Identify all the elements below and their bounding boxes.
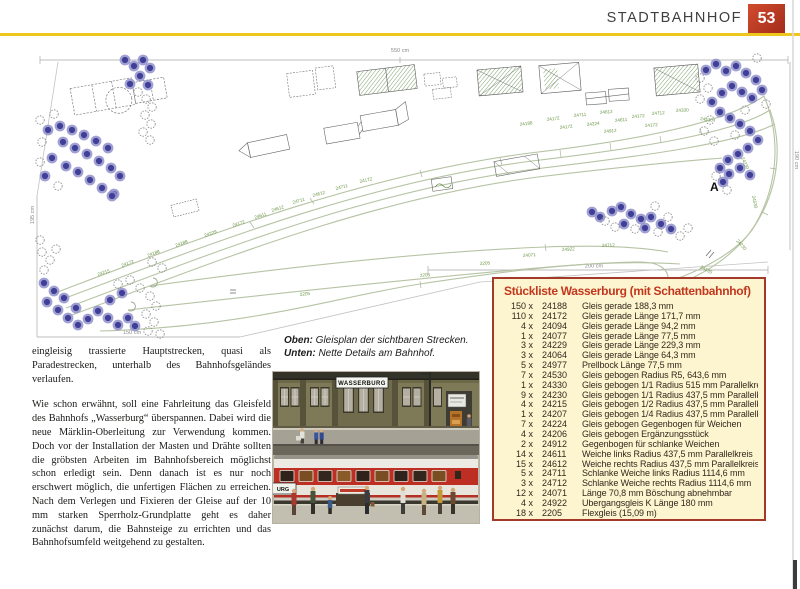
tree-icon bbox=[60, 139, 66, 145]
track-part-label: 24172 bbox=[359, 176, 373, 184]
tree-icon bbox=[621, 221, 627, 227]
tree-icon bbox=[115, 322, 121, 328]
tree-outline-icon bbox=[54, 182, 62, 190]
tree-icon bbox=[93, 138, 99, 144]
parts-list: Stückliste Wasserburg (mit Schattenbahnh… bbox=[492, 277, 766, 521]
track-part-label: 24071 bbox=[523, 252, 537, 258]
tree-icon bbox=[747, 128, 753, 134]
tree-icon bbox=[57, 123, 63, 129]
tree-outline-icon bbox=[664, 213, 672, 221]
parts-code: 2205 bbox=[542, 509, 576, 519]
parts-desc: Gleis gebogen 1/4 Radius 437,5 mm Parall… bbox=[582, 410, 758, 420]
tree-icon bbox=[96, 158, 102, 164]
tree-icon bbox=[107, 297, 113, 303]
track-part-label: 24188 bbox=[519, 120, 533, 127]
passenger-coach bbox=[274, 455, 478, 505]
parts-desc: Schlanke Weiche rechts Radius 1114,6 mm bbox=[582, 479, 758, 489]
tree-icon bbox=[117, 173, 123, 179]
tree-icon bbox=[87, 177, 93, 183]
track-part-label: 24224 bbox=[587, 121, 601, 127]
track-part-label: 24188 bbox=[147, 249, 161, 258]
tree-outline-icon bbox=[52, 245, 60, 253]
tree-icon bbox=[145, 82, 151, 88]
tree-icon bbox=[41, 280, 47, 286]
tree-outline-icon bbox=[38, 248, 46, 256]
caption-lead-oben: Oben: bbox=[284, 335, 313, 346]
tree-outline-icon bbox=[142, 95, 150, 103]
tree-outline-icon bbox=[753, 54, 761, 62]
tree-icon bbox=[658, 221, 664, 227]
tree-icon bbox=[743, 70, 749, 76]
track-part-label: 24172 bbox=[560, 124, 574, 130]
parts-desc: Prellbock Länge 77,5 mm bbox=[582, 361, 758, 371]
parts-desc: Gleis gebogen 1/1 Radius 437,5 mm Parall… bbox=[582, 391, 758, 401]
partial-sign-text: URG bbox=[277, 487, 289, 493]
track-part-label: 24612 bbox=[271, 204, 285, 213]
tree-icon bbox=[55, 307, 61, 313]
tree-icon bbox=[119, 290, 125, 296]
parts-desc: Gleis gerade Länge 64,3 mm bbox=[582, 351, 758, 361]
parts-qty: 18 x bbox=[504, 509, 533, 519]
tree-icon bbox=[61, 295, 67, 301]
tree-outline-icon bbox=[654, 228, 662, 236]
track-part-label: 2205 bbox=[300, 291, 311, 297]
track-part-label: 2205 bbox=[480, 260, 491, 266]
tree-icon bbox=[75, 169, 81, 175]
tree-icon bbox=[749, 95, 755, 101]
tree-icon bbox=[726, 171, 732, 177]
tree-icon bbox=[95, 308, 101, 314]
tree-outline-icon bbox=[631, 225, 639, 233]
track-part-label: 24172 bbox=[547, 115, 561, 122]
track-part-label: 24215 bbox=[97, 268, 111, 277]
tree-icon bbox=[51, 288, 57, 294]
tree-icon bbox=[49, 155, 55, 161]
tree-icon bbox=[109, 193, 115, 199]
tree-icon bbox=[132, 323, 138, 329]
parts-desc: Gleis gebogen Gegenbogen für Weichen bbox=[582, 420, 758, 430]
tree-icon bbox=[45, 127, 51, 133]
tree-outline-icon bbox=[146, 136, 154, 144]
tree-outline-icon bbox=[148, 103, 156, 111]
station-sign-text: WASSERBURG bbox=[338, 381, 386, 387]
track-part-label: 24188 bbox=[175, 239, 189, 248]
tree-icon bbox=[642, 225, 648, 231]
tree-outline-icon bbox=[144, 327, 152, 335]
tree-icon bbox=[717, 109, 723, 115]
parts-desc: Gleis gerade Länge 77,5 mm bbox=[582, 332, 758, 342]
tree-outline-icon bbox=[40, 266, 48, 274]
tree-icon bbox=[147, 65, 153, 71]
tree-icon bbox=[63, 163, 69, 169]
tree-icon bbox=[99, 185, 105, 191]
tree-icon bbox=[85, 316, 91, 322]
tree-icon bbox=[131, 63, 137, 69]
tree-outline-icon bbox=[126, 276, 134, 284]
caption-text-unten: Nette Details am Bahnhof. bbox=[316, 348, 436, 359]
tree-icon bbox=[739, 89, 745, 95]
tree-outline-icon bbox=[704, 84, 712, 92]
parts-desc: Gleis gebogen 1/2 Radius 437,5 mm Parall… bbox=[582, 400, 758, 410]
tree-outline-icon bbox=[712, 172, 720, 180]
scan-edge-light bbox=[792, 0, 794, 589]
track-part-label: 24711 bbox=[574, 112, 587, 118]
tree-icon bbox=[137, 73, 143, 79]
parts-desc: Übergangsgleis K Länge 180 mm bbox=[582, 499, 758, 509]
tree-icon bbox=[105, 145, 111, 151]
tree-icon bbox=[709, 99, 715, 105]
tree-icon bbox=[648, 214, 654, 220]
tree-outline-icon bbox=[710, 137, 718, 145]
tree-icon bbox=[75, 322, 81, 328]
track-part-label: 24172 bbox=[232, 219, 246, 228]
tree-icon bbox=[84, 151, 90, 157]
track-part-label: 2205 bbox=[420, 272, 431, 278]
scan-edge-dark bbox=[793, 560, 797, 589]
track-part-label: 24612 bbox=[312, 190, 326, 198]
track-part-label: 24172 bbox=[632, 113, 646, 119]
parts-desc: Weiche links Radius 437,5 mm Parallelkre… bbox=[582, 450, 758, 460]
tree-icon bbox=[725, 157, 731, 163]
caption-lead-unten: Unten: bbox=[284, 348, 316, 359]
article-paragraph-2: Wie schon erwähnt, soll eine Fahrleitung… bbox=[32, 398, 271, 550]
tree-icon bbox=[69, 127, 75, 133]
parts-list-row: 18 x2205Flexgleis (15,09 m) bbox=[504, 509, 758, 519]
tree-outline-icon bbox=[146, 292, 154, 300]
tree-outline-icon bbox=[36, 158, 44, 166]
tree-outline-icon bbox=[158, 264, 166, 272]
caption-text-oben: Gleisplan der sichtbaren Strecken. bbox=[313, 335, 469, 346]
tree-icon bbox=[753, 77, 759, 83]
track-part-label: 24230 bbox=[735, 238, 748, 251]
tree-icon bbox=[125, 315, 131, 321]
track-part-label: 24172 bbox=[121, 259, 135, 268]
tree-icon bbox=[668, 226, 674, 232]
parts-desc: Gegenbogen für schlanke Weichen bbox=[582, 440, 758, 450]
tree-icon bbox=[122, 57, 128, 63]
tree-icon bbox=[140, 57, 146, 63]
parts-list-title: Stückliste Wasserburg (mit Schattenbahnh… bbox=[504, 284, 758, 298]
tree-icon bbox=[628, 211, 634, 217]
tree-outline-icon bbox=[147, 120, 155, 128]
tree-icon bbox=[618, 204, 624, 210]
tree-icon bbox=[81, 132, 87, 138]
tree-icon bbox=[65, 315, 71, 321]
tree-icon bbox=[735, 151, 741, 157]
tree-outline-icon bbox=[611, 223, 619, 231]
tree-icon bbox=[745, 145, 751, 151]
tree-outline-icon bbox=[139, 128, 147, 136]
tree-icon bbox=[638, 216, 644, 222]
tree-icon bbox=[609, 208, 615, 214]
tree-icon bbox=[713, 61, 719, 67]
magazine-page: STADTBAHNHOF 53 550 cm bbox=[0, 0, 800, 589]
tree-icon bbox=[720, 179, 726, 185]
tree-icon bbox=[759, 87, 765, 93]
parts-desc: Flexgleis (15,09 m) bbox=[582, 509, 758, 519]
building-row bbox=[286, 62, 700, 105]
tree-icon bbox=[737, 121, 743, 127]
track-part-label: 24711 bbox=[335, 183, 349, 191]
tree-icon bbox=[755, 137, 761, 143]
tree-icon bbox=[105, 315, 111, 321]
track-part-label: 24712 bbox=[652, 110, 666, 116]
track-part-label: 24612 bbox=[600, 109, 614, 115]
tree-icon bbox=[729, 83, 735, 89]
tree-outline-icon bbox=[38, 138, 46, 146]
photo-caption: Oben: Gleisplan der sichtbaren Strecken.… bbox=[284, 335, 489, 361]
tree-outline-icon bbox=[651, 202, 659, 210]
dim-left: 195 cm bbox=[30, 205, 36, 224]
parts-desc: Gleis gebogen Radius R5, 643,6 mm bbox=[582, 371, 758, 381]
tree-outline-icon bbox=[46, 256, 54, 264]
tree-icon bbox=[589, 209, 595, 215]
parts-desc: Gleis gerade Länge 229,3 mm bbox=[582, 341, 758, 351]
parts-desc: Gleis gerade 188,3 mm bbox=[582, 302, 758, 312]
tree-outline-icon bbox=[50, 110, 58, 118]
tree-outline-icon bbox=[36, 116, 44, 124]
track-part-label: 24229 bbox=[204, 229, 218, 238]
track-part-label: 24712 bbox=[602, 243, 615, 248]
tree-outline-icon bbox=[134, 88, 142, 96]
station-photo: WASSERBURG bbox=[272, 371, 480, 524]
parts-desc: Gleis gebogen Ergänzungsstück bbox=[582, 430, 758, 440]
tree-outline-icon bbox=[114, 280, 122, 288]
tree-outline-icon bbox=[684, 224, 692, 232]
tree-outline-icon bbox=[148, 258, 156, 266]
parts-desc: Gleis gebogen 1/1 Radius 515 mm Parallel… bbox=[582, 381, 758, 391]
parts-desc: Gleis gerade Länge 171,7 mm bbox=[582, 312, 758, 322]
tree-icon bbox=[72, 145, 78, 151]
parts-desc: Schlanke Weiche links Radius 1114,6 mm bbox=[582, 469, 758, 479]
track-part-label: 24172 bbox=[645, 122, 659, 128]
tree-icon bbox=[727, 115, 733, 121]
article-paragraph-1: eingleisig trassierte Hauptstrecken, qua… bbox=[32, 345, 271, 386]
tree-icon bbox=[717, 165, 723, 171]
track-part-label: 24912 bbox=[604, 128, 618, 134]
tree-icon bbox=[108, 165, 114, 171]
parts-desc: Gleis gerade Länge 94,2 mm bbox=[582, 322, 758, 332]
dim-top: 550 cm bbox=[391, 48, 410, 54]
track-part-label: 24330 bbox=[676, 107, 689, 113]
tree-icon bbox=[597, 214, 603, 220]
article-column: eingleisig trassierte Hauptstrecken, qua… bbox=[32, 345, 271, 562]
track-part-label: 24611 bbox=[615, 117, 628, 123]
building-dashed-complex bbox=[70, 72, 168, 121]
station-platforms bbox=[171, 102, 540, 217]
parts-desc: Länge 70,8 mm Böschung abnehmbar bbox=[582, 489, 758, 499]
tree-outline-icon bbox=[142, 310, 150, 318]
tree-icon bbox=[737, 165, 743, 171]
tree-icon bbox=[44, 299, 50, 305]
tree-outline-icon bbox=[696, 95, 704, 103]
caption-line-2: Unten: Nette Details am Bahnhof. bbox=[284, 348, 489, 361]
tree-icon bbox=[747, 172, 753, 178]
tree-outline-icon bbox=[141, 111, 149, 119]
tree-icon bbox=[733, 63, 739, 69]
track-part-label: 24611 bbox=[254, 211, 268, 220]
tree-icon bbox=[127, 81, 133, 87]
tree-icon bbox=[723, 68, 729, 74]
track-part-label: 24530 bbox=[751, 195, 759, 209]
tree-icon bbox=[703, 67, 709, 73]
tree-outline-icon bbox=[150, 318, 158, 326]
track-part-label: 24922 bbox=[562, 246, 575, 252]
parts-desc: Weiche rechts Radius 437,5 mm Parallelkr… bbox=[582, 460, 758, 470]
tree-icon bbox=[42, 173, 48, 179]
parts-list-rows: 150 x24188Gleis gerade 188,3 mm110 x2417… bbox=[504, 302, 758, 519]
dim-bottom-left: 150 cm bbox=[123, 330, 142, 336]
tree-outline-icon bbox=[676, 232, 684, 240]
tree-icon bbox=[73, 305, 79, 311]
tree-icon bbox=[719, 90, 725, 96]
caption-line-1: Oben: Gleisplan der sichtbaren Strecken. bbox=[284, 335, 489, 348]
